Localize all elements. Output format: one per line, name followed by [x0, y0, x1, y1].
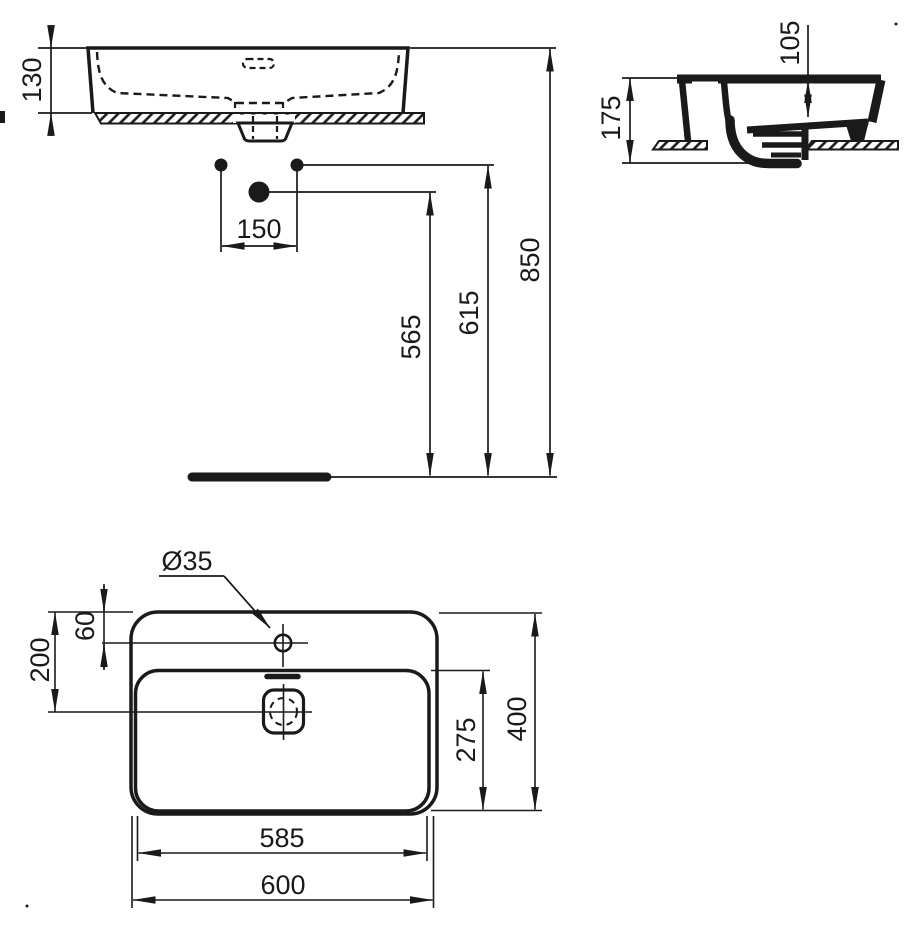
front-view: 130 150 565 615 850 — [0, 25, 557, 477]
dim-overall-depth-plan: 400 — [439, 613, 542, 810]
leader-line — [224, 576, 270, 628]
outer-wall-section — [682, 81, 688, 141]
overflow-channel-opening — [692, 82, 718, 86]
tap-hole-left-dot — [215, 159, 228, 172]
dim-bowl-depth: 105 — [775, 20, 808, 117]
dim-label: 105 — [775, 20, 805, 65]
edge-artifact — [0, 111, 5, 123]
outer-wall-section — [872, 80, 881, 122]
dim-label: 600 — [260, 870, 305, 900]
dim-label: 565 — [396, 314, 426, 359]
dim-label: 275 — [451, 717, 481, 762]
side-view: 175 105 — [596, 20, 898, 163]
dim-label: 850 — [515, 237, 545, 282]
dim-label: 175 — [596, 95, 626, 140]
print-artifact — [895, 23, 898, 26]
vessel-outline — [88, 48, 408, 113]
dim-tap-hole-offset: 60 — [48, 584, 133, 670]
dim-basin-height: 130 — [17, 25, 92, 136]
dim-tap-height: 615 — [454, 166, 488, 476]
dim-label: 585 — [259, 823, 304, 853]
overflow-slot-dashed — [243, 59, 274, 68]
dim-label: 130 — [17, 57, 47, 102]
plan-view: Ø35 60 200 275 400 — [25, 546, 542, 908]
countertop-section — [806, 141, 898, 150]
dim-drain-height: 565 — [396, 193, 430, 476]
dim-tap-spacing: 150 — [222, 214, 296, 246]
dim-label: 60 — [70, 611, 100, 641]
dim-label: 200 — [25, 637, 55, 682]
countertop-section — [653, 141, 707, 150]
label-tap-hole-diameter: Ø35 — [159, 546, 270, 628]
washbasin-technical-drawing: 130 150 565 615 850 — [0, 0, 924, 926]
dim-drain-offset: 200 — [25, 613, 55, 712]
dim-label: 400 — [502, 696, 532, 741]
technical-drawing-page: 130 150 565 615 850 — [0, 0, 924, 926]
dim-bowl-width: 585 — [138, 816, 428, 861]
print-artifact — [26, 905, 29, 908]
dim-label: Ø35 — [161, 546, 212, 576]
dim-label: 615 — [454, 290, 484, 335]
drain-tailpiece — [238, 123, 292, 141]
dim-rim-height: 850 — [410, 48, 556, 476]
dim-label: 150 — [236, 214, 281, 244]
